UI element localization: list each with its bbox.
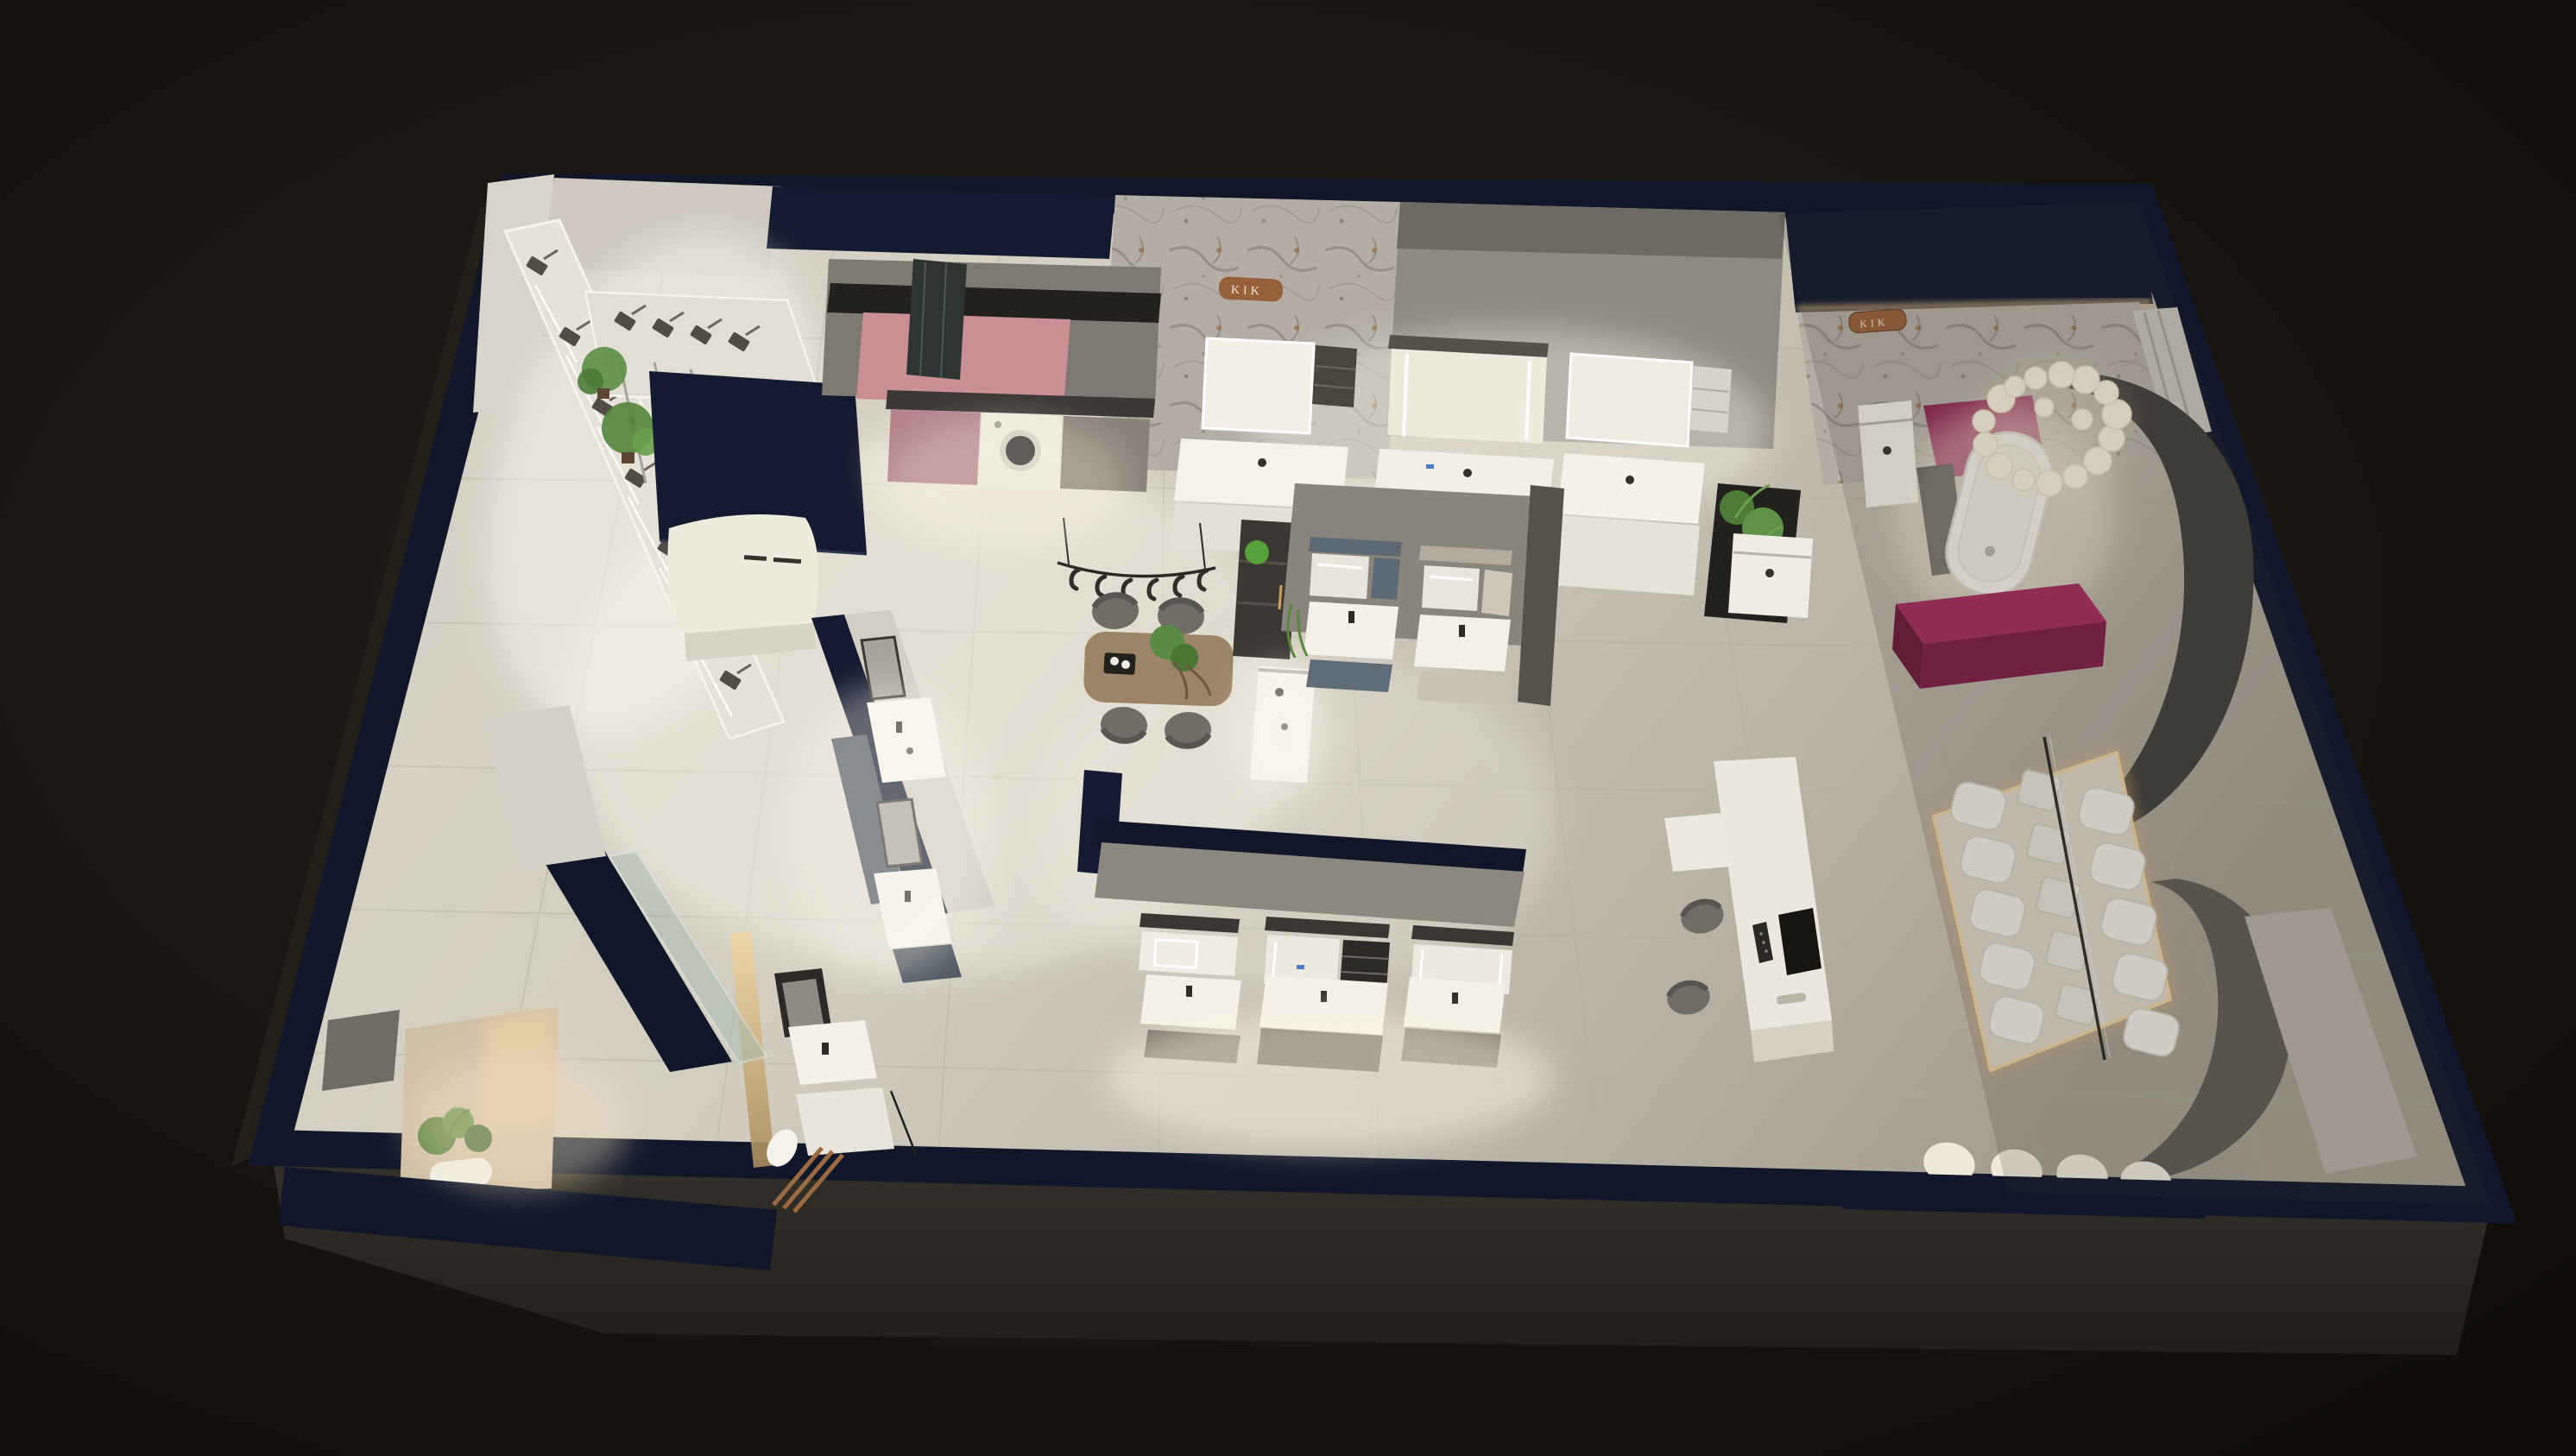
led-mirror bbox=[1139, 931, 1238, 976]
planter-side-basin-unit bbox=[1728, 533, 1813, 618]
mirror bbox=[1310, 553, 1369, 599]
glow-corner-room bbox=[406, 1053, 630, 1191]
showroom-render: KIK KIK bbox=[0, 0, 2576, 1456]
cabinet bbox=[1417, 671, 1506, 705]
faucet bbox=[1348, 611, 1354, 623]
faucet bbox=[1452, 993, 1458, 1004]
side-shelf bbox=[1481, 570, 1512, 616]
ensuite-basin bbox=[788, 1020, 877, 1085]
basin bbox=[1304, 602, 1398, 659]
basin bbox=[1557, 453, 1705, 524]
faucet bbox=[1186, 986, 1192, 997]
corner-gray-wall bbox=[322, 1010, 400, 1091]
brand-sign-north: KIK bbox=[1218, 276, 1283, 302]
north-navy-band bbox=[767, 186, 1115, 259]
faucet bbox=[1459, 625, 1465, 637]
faucet bbox=[1463, 469, 1472, 477]
side-shelf bbox=[1371, 558, 1400, 600]
cabinet bbox=[1306, 659, 1392, 692]
product-tag bbox=[1426, 464, 1434, 469]
faucet bbox=[822, 1043, 829, 1055]
side-shelf bbox=[1312, 345, 1357, 407]
desk-top bbox=[1664, 813, 1730, 872]
vanity-unit-slate bbox=[1304, 537, 1402, 692]
glow-laundry bbox=[885, 414, 1127, 552]
faucet bbox=[1626, 476, 1634, 484]
brand-sign-north-text: KIK bbox=[1231, 284, 1264, 299]
center-double-vanity bbox=[1281, 483, 1564, 706]
south-vanity-row bbox=[1093, 820, 1554, 1148]
product-tag bbox=[1297, 965, 1304, 969]
led-mirror-cabinet bbox=[1387, 349, 1547, 444]
mirror bbox=[1422, 565, 1480, 611]
faucet bbox=[1258, 458, 1266, 467]
reception-counter bbox=[667, 514, 818, 661]
cabinet bbox=[1553, 515, 1700, 596]
table-tray bbox=[1103, 652, 1135, 675]
ensuite-counter bbox=[796, 1087, 894, 1156]
led-mirror bbox=[1567, 354, 1692, 446]
side-shelf bbox=[1689, 366, 1732, 433]
glass-display-cabinet bbox=[906, 259, 967, 380]
led-mirror bbox=[1203, 338, 1314, 433]
basin bbox=[1414, 615, 1511, 671]
faucet bbox=[1321, 991, 1327, 1002]
